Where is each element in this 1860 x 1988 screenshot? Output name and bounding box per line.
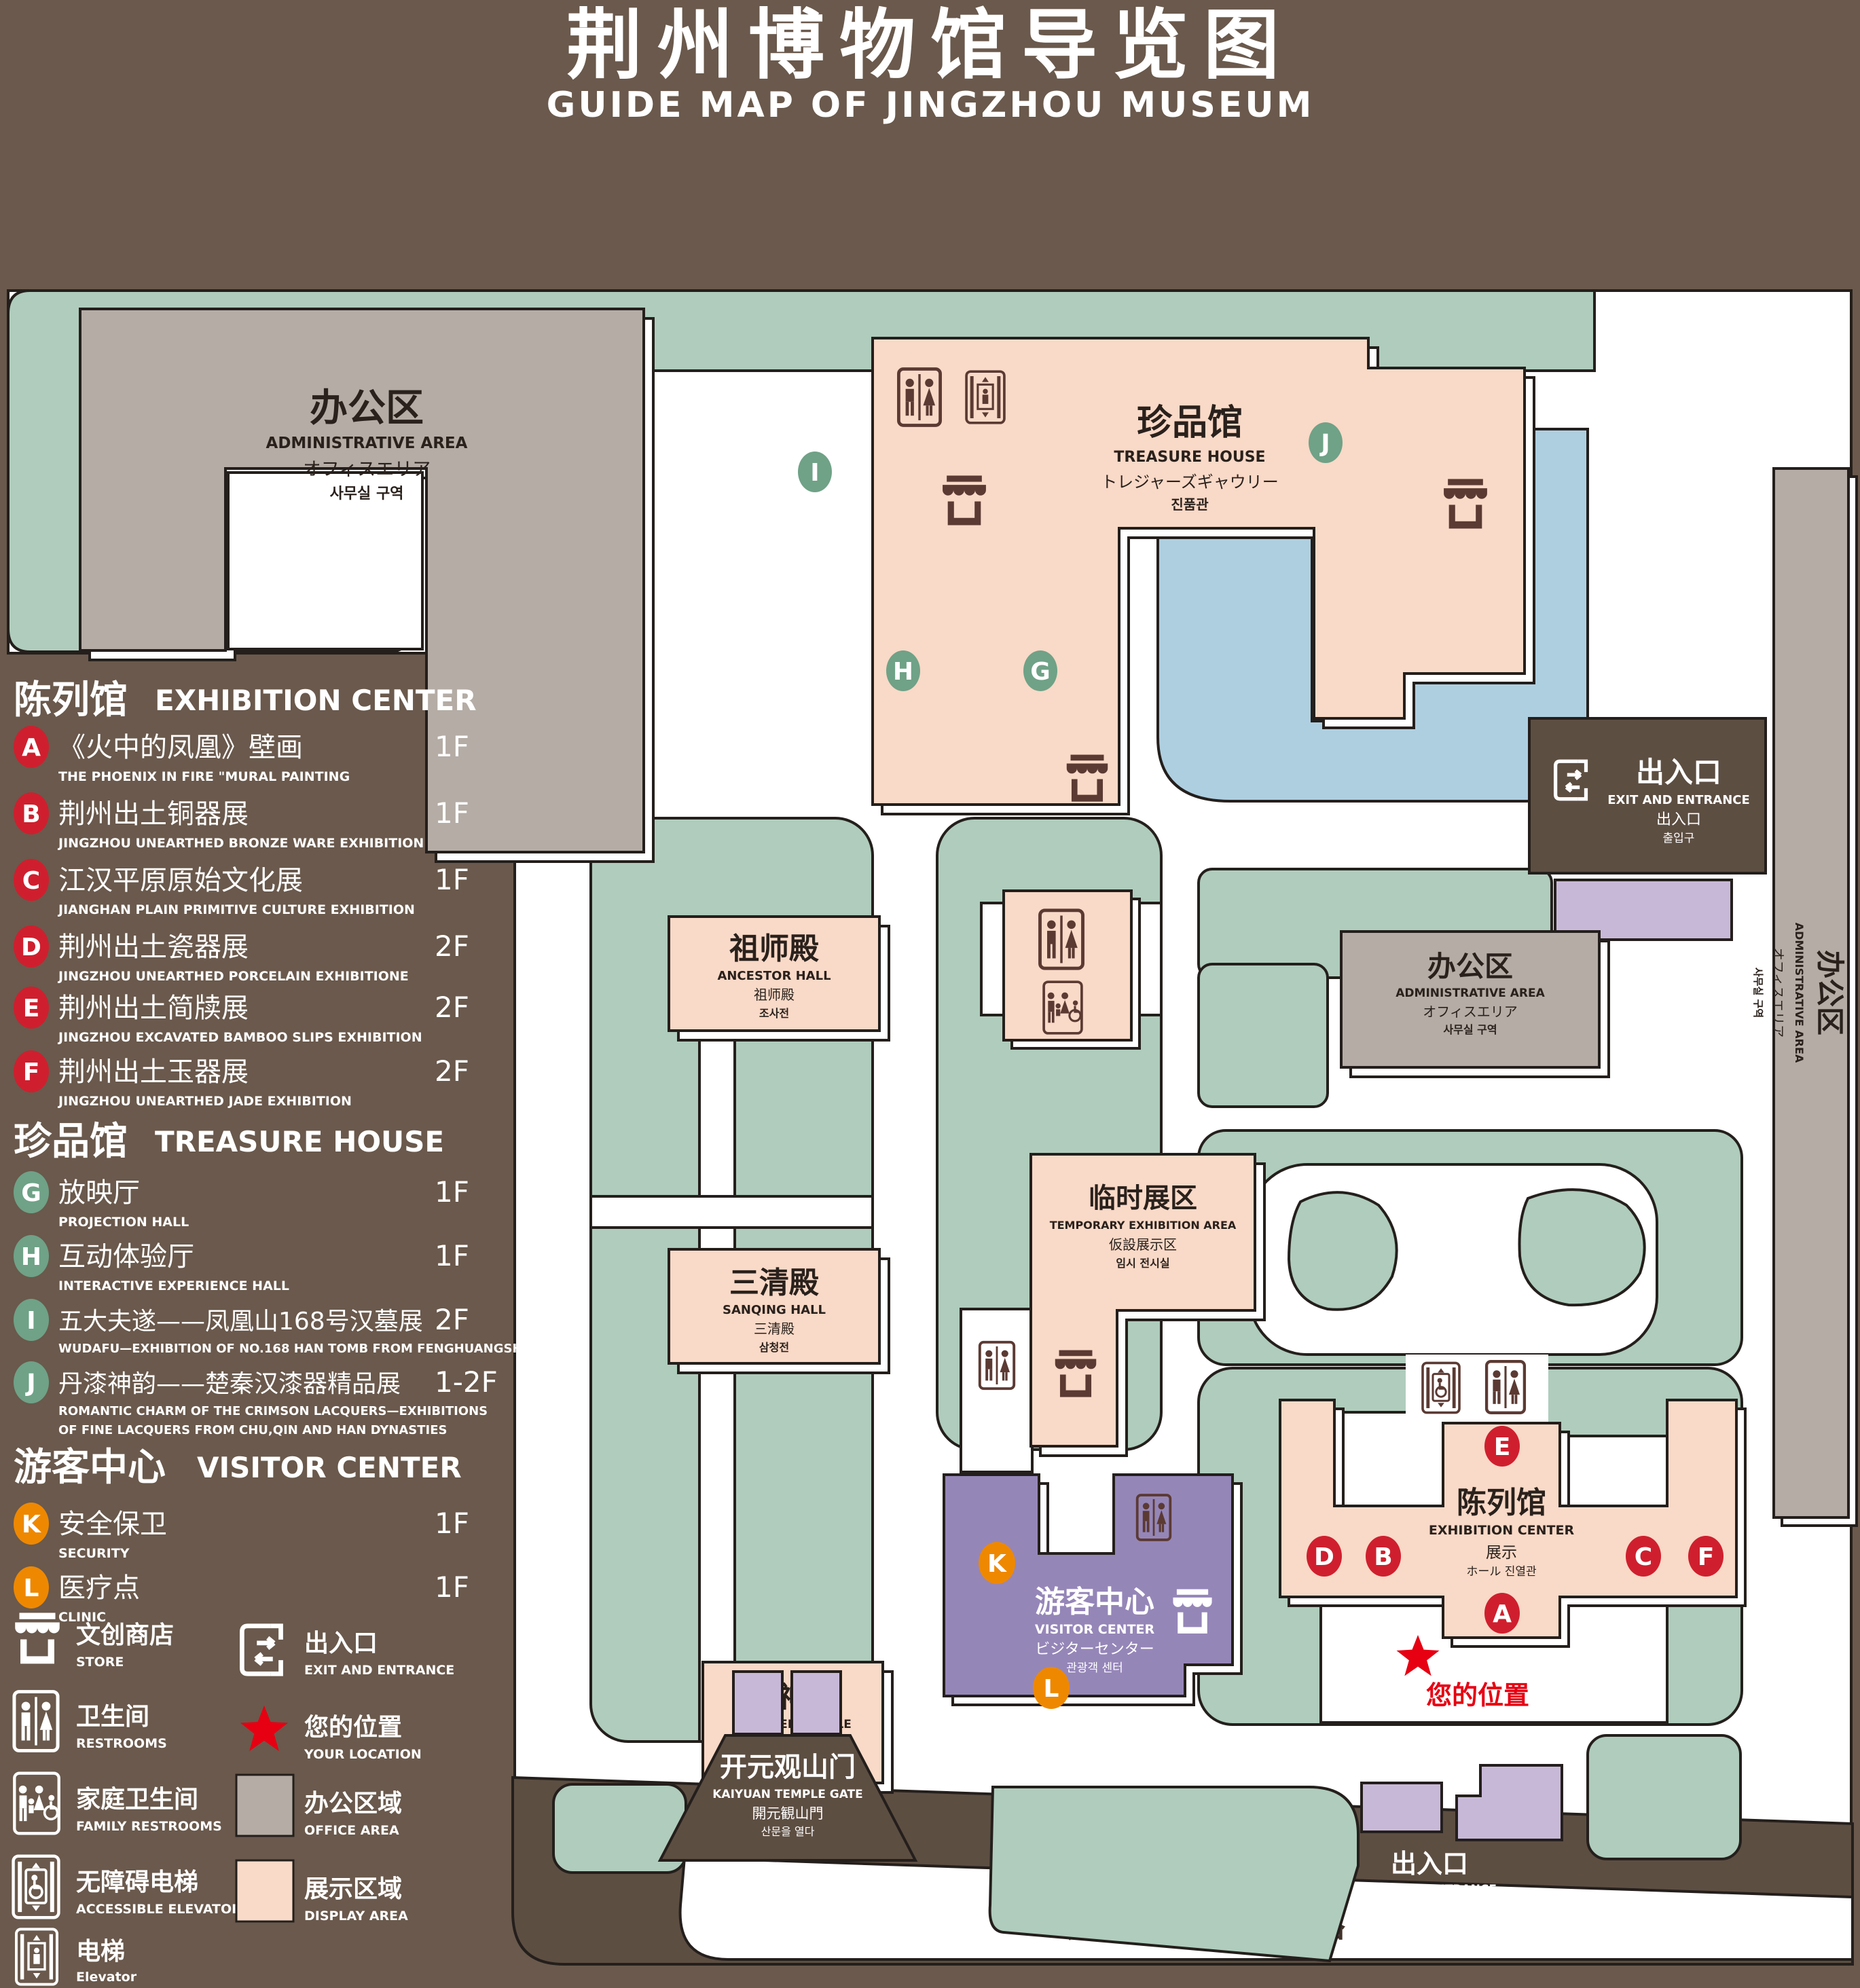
visitor-cn: 游客中心 [1035, 1585, 1154, 1619]
display-area-swatch [236, 1860, 293, 1921]
svg-text:2F: 2F [435, 991, 469, 1024]
svg-text:文创商店: 文创商店 [76, 1621, 174, 1649]
svg-text:YOUR LOCATION: YOUR LOCATION [304, 1747, 422, 1762]
marker-f: F [1688, 1536, 1724, 1577]
gate-cn: 开元观山门 [720, 1752, 856, 1783]
legend-your-location: 您的位置 YOUR LOCATION [240, 1706, 422, 1762]
sidebar-item-i: I 五大夫遂——凤凰山168号汉墓展 WUDAFU—EXHIBITION OF … [14, 1299, 543, 1356]
ancestor-cn: 祖师殿 [729, 932, 819, 966]
treasure-jp: トレジャーズギャウリー [1101, 473, 1279, 492]
gate-pillar-west [733, 1672, 782, 1734]
svg-text:1F: 1F [435, 1175, 469, 1209]
temporary-l4: 임시 전시실 [1116, 1257, 1169, 1270]
legend-accessible-elevator: 无障碍电梯 ACCESSIBLE ELEVATOR [14, 1856, 242, 1918]
elevator-icon [966, 371, 1004, 423]
legend-display-area: 展示区域 DISPLAY AREA [236, 1860, 408, 1923]
section-visitor-cn: 游客中心 [14, 1446, 166, 1490]
svg-text:荆州出土铜器展: 荆州出土铜器展 [58, 798, 249, 830]
svg-text:J: J [24, 1369, 35, 1397]
svg-text:安全保卫: 安全保卫 [58, 1509, 167, 1540]
legend-office-area: 办公区域 OFFICE AREA [236, 1775, 402, 1838]
svg-text:WUDAFU—EXHIBITION OF NO.168 HA: WUDAFU—EXHIBITION OF NO.168 HAN TOMB FRO… [58, 1342, 543, 1356]
visitor-en: VISITOR CENTER [1035, 1622, 1155, 1637]
svg-text:J: J [1319, 430, 1330, 458]
lawn-east-finger [1199, 964, 1328, 1107]
treasure-kr: 진품관 [1171, 496, 1209, 513]
svg-text:Elevator: Elevator [76, 1970, 137, 1985]
svg-text:ROMANTIC CHARM OF THE CRIMSON: ROMANTIC CHARM OF THE CRIMSON LACQUERS—E… [58, 1404, 488, 1418]
admin-e-en: ADMINISTRATIVE AREA [1793, 923, 1806, 1063]
sidebar-item-c: C 江汉平原原始文化展 JIANGHAN PLAIN PRIMITIVE CUL… [14, 859, 469, 917]
gate-pillar-east [792, 1672, 841, 1734]
svg-text:C: C [1635, 1543, 1652, 1571]
svg-text:THE PHOENIX IN FIRE "MURAL PAI: THE PHOENIX IN FIRE "MURAL PAINTING [58, 769, 350, 784]
exit-ne-en: EXIT AND ENTRANCE [1607, 793, 1750, 807]
svg-text:江汉平原原始文化展: 江汉平原原始文化展 [58, 865, 303, 896]
svg-text:1F: 1F [435, 796, 469, 830]
svg-text:医疗点: 医疗点 [58, 1572, 140, 1604]
admin-e-cn: 办公区 [1813, 950, 1846, 1035]
svg-text:OFFICE AREA: OFFICE AREA [304, 1823, 399, 1838]
legend-elevator: 电梯 Elevator [16, 1929, 137, 1985]
svg-text:JIANGHAN PLAIN PRIMITIVE CULTU: JIANGHAN PLAIN PRIMITIVE CULTURE EXHIBIT… [57, 902, 415, 917]
svg-text:EXIT AND ENTRANCE: EXIT AND ENTRANCE [304, 1663, 454, 1678]
svg-text:1F: 1F [435, 1570, 469, 1604]
legend-restroom: 卫生间 RESTROOMS [14, 1692, 167, 1751]
accessible-elevator-icon [14, 1856, 59, 1918]
svg-text:2F: 2F [435, 1303, 469, 1336]
svg-text:荆州出土简牍展: 荆州出土简牍展 [58, 993, 249, 1024]
marker-a: A [1484, 1593, 1520, 1634]
garden-island-east [1520, 1190, 1645, 1305]
visitor-kr: 관광객 센터 [1066, 1661, 1123, 1675]
svg-text:H: H [21, 1243, 41, 1271]
ancestor-l3: 祖师殿 [754, 987, 795, 1003]
path-column-a-horizontal [591, 1196, 873, 1228]
admin-e-jp: オフィスエリア [1770, 948, 1785, 1038]
svg-text:1-2F: 1-2F [435, 1365, 498, 1399]
svg-text:K: K [987, 1550, 1007, 1578]
svg-text:D: D [1314, 1543, 1334, 1571]
map-canvas: 荆州博物馆导览图 GUIDE MAP OF JINGZHOU MUSEUM 荆 … [0, 0, 1860, 1988]
exit-s-cn: 出入口 [1391, 1849, 1468, 1879]
svg-text:INTERACTIVE EXPERIENCE HALL: INTERACTIVE EXPERIENCE HALL [58, 1278, 289, 1293]
exit-ne-kr: 출입구 [1663, 832, 1695, 845]
temporary-l3: 仮設展示区 [1109, 1236, 1177, 1253]
sidebar-item-a: A 《火中的凤凰》壁画 THE PHOENIX IN FIRE "MURAL P… [14, 726, 469, 784]
svg-text:1F: 1F [435, 1507, 469, 1540]
your-location-label: 您的位置 [1426, 1680, 1529, 1710]
gate-en: KAIYUAN TEMPLE GATE [712, 1788, 863, 1801]
gate-jp: 開元観山門 [752, 1805, 824, 1822]
gate-kr: 산문을 열다 [761, 1825, 815, 1838]
legend-store: 文创商店 STORE [15, 1613, 174, 1670]
exhibition-l4: ホール 진열관 [1466, 1565, 1536, 1579]
lawn-south-east [1588, 1735, 1740, 1859]
admin-c-jp: オフィスエリア [1423, 1004, 1518, 1020]
svg-text:B: B [1374, 1543, 1392, 1571]
svg-text:I: I [810, 459, 819, 487]
marker-g: G [1023, 650, 1057, 691]
svg-text:家庭卫生间: 家庭卫生间 [76, 1786, 198, 1814]
restroom-icon [14, 1692, 58, 1751]
exit-s-en: EXIT AND ENTRANCE [1362, 1883, 1497, 1896]
sidebar-item-h: H 互动体验厅 INTERACTIVE EXPERIENCE HALL 1F [14, 1235, 469, 1293]
page-title: 荆州博物馆导览图 [566, 1, 1294, 90]
marker-c: C [1626, 1536, 1661, 1577]
legend-family-restroom: 家庭卫生间 FAMILY RESTROOMS [14, 1773, 222, 1834]
svg-text:FAMILY RESTROOMS: FAMILY RESTROOMS [76, 1819, 222, 1834]
svg-text:电梯: 电梯 [76, 1938, 125, 1966]
temporary-en: TEMPORARY EXHIBITION AREA [1050, 1219, 1237, 1232]
svg-text:E: E [1494, 1433, 1511, 1461]
admin-c-kr: 사무실 구역 [1443, 1023, 1497, 1036]
svg-text:A: A [22, 734, 41, 762]
svg-text:展示区域: 展示区域 [304, 1875, 402, 1903]
sidebar-item-k: K 安全保卫 SECURITY 1F [14, 1503, 469, 1561]
store-icon [15, 1613, 60, 1663]
svg-text:五大夫遂——凤凰山168号汉墓展: 五大夫遂——凤凰山168号汉墓展 [58, 1308, 423, 1336]
building-restroom-pavilion [981, 891, 1161, 1048]
svg-text:F: F [1698, 1543, 1715, 1571]
svg-text:STORE: STORE [76, 1655, 124, 1670]
svg-text:您的位置: 您的位置 [304, 1714, 402, 1742]
svg-text:JINGZHOU EXCAVATED BAMBOO SLIP: JINGZHOU EXCAVATED BAMBOO SLIPS EXHIBITI… [57, 1030, 422, 1045]
page-subtitle: GUIDE MAP OF JINGZHOU MUSEUM [547, 85, 1315, 126]
svg-text:F: F [23, 1059, 40, 1086]
exhibition-cn: 陈列馆 [1457, 1486, 1546, 1520]
exit-northeast: 出入口 EXIT AND ENTRANCE 出入口 출입구 [1529, 718, 1766, 940]
visitor-jp: ビジターセンター [1035, 1641, 1154, 1658]
svg-text:DISPLAY AREA: DISPLAY AREA [304, 1909, 408, 1923]
sanqing-cn: 三清殿 [729, 1266, 819, 1300]
marker-e: E [1484, 1426, 1520, 1467]
sanqing-en: SANQING HALL [723, 1303, 826, 1317]
svg-text:OF FINE LACQUERS FROM CHU,QIN: OF FINE LACQUERS FROM CHU,QIN AND HAN DY… [58, 1423, 447, 1437]
admin-nw-cn: 办公区 [310, 386, 424, 430]
marker-h: H [886, 650, 920, 691]
section-exhibition-cn: 陈列馆 [14, 678, 128, 722]
svg-text:荆州出土瓷器展: 荆州出土瓷器展 [58, 932, 249, 963]
admin-e-kr: 사무실 구역 [1752, 968, 1764, 1018]
section-visitor-en: VISITOR CENTER [197, 1451, 462, 1484]
guide-map-page: 荆州博物馆导览图 GUIDE MAP OF JINGZHOU MUSEUM 荆 … [0, 0, 1860, 1988]
svg-text:放映厅: 放映厅 [58, 1177, 140, 1209]
sidebar-item-g: G 放映厅 PROJECTION HALL 1F [14, 1171, 469, 1230]
building-ancestor-hall: 祖师殿 ANCESTOR HALL 祖师殿 조사전 [669, 917, 889, 1040]
svg-text:办公区域: 办公区域 [304, 1790, 402, 1818]
svg-text:出入口: 出入口 [304, 1630, 378, 1657]
sanqing-l3: 三清殿 [754, 1321, 795, 1337]
exhibition-l3: 展示 [1486, 1544, 1517, 1562]
sidebar-item-f: F 荆州出土玉器展 JINGZHOU UNEARTHED JADE EXHIBI… [14, 1050, 469, 1109]
building-admin-center: 办公区 ADMINISTRATIVE AREA オフィスエリア 사무실 구역 [1341, 932, 1609, 1077]
marker-k: K [979, 1542, 1015, 1584]
section-treasure-cn: 珍品馆 [14, 1120, 128, 1164]
svg-text:L: L [1044, 1675, 1059, 1703]
exit-ne-cn: 出入口 [1636, 756, 1721, 789]
admin-c-en: ADMINISTRATIVE AREA [1396, 987, 1545, 1000]
admin-c-cn: 办公区 [1427, 950, 1513, 983]
svg-text:PROJECTION HALL: PROJECTION HALL [58, 1215, 189, 1230]
treasure-en: TREASURE HOUSE [1114, 449, 1265, 466]
garden-island-west [1289, 1192, 1397, 1310]
svg-text:荆州出土玉器展: 荆州出土玉器展 [58, 1056, 249, 1088]
treasure-cn: 珍品馆 [1137, 403, 1243, 443]
admin-nw-jp: オフィスエリア [303, 459, 431, 480]
svg-text:D: D [21, 934, 41, 961]
svg-text:G: G [21, 1179, 41, 1207]
exit-ne-jp: 出入口 [1656, 811, 1701, 828]
svg-text:ACCESSIBLE ELEVATOR: ACCESSIBLE ELEVATOR [76, 1902, 242, 1917]
svg-text:G: G [1030, 658, 1051, 686]
gate-building-s1 [1362, 1783, 1442, 1832]
svg-text:丹漆神韵——楚秦汉漆器精品展: 丹漆神韵——楚秦汉漆器精品展 [58, 1370, 401, 1398]
svg-text:K: K [22, 1511, 41, 1539]
svg-text:卫生间: 卫生间 [76, 1703, 149, 1731]
svg-text:I: I [26, 1307, 35, 1335]
svg-text:E: E [23, 995, 40, 1023]
marker-j: J [1309, 422, 1343, 463]
svg-text:L: L [24, 1575, 39, 1602]
svg-text:1F: 1F [435, 1239, 469, 1272]
legend-exit: 出入口 EXIT AND ENTRANCE [242, 1626, 454, 1678]
sidebar-item-j: J 丹漆神韵——楚秦汉漆器精品展 ROMANTIC CHARM OF THE C… [14, 1361, 498, 1437]
section-exhibition-en: EXHIBITION CENTER [155, 684, 477, 717]
lawn-south-middle [990, 1787, 1358, 1961]
svg-text:B: B [22, 800, 40, 828]
marker-d: D [1307, 1536, 1342, 1577]
section-treasure-en: TREASURE HOUSE [155, 1125, 444, 1158]
marker-i: I [798, 452, 832, 492]
svg-text:2F: 2F [435, 1054, 469, 1088]
svg-text:无障碍电梯: 无障碍电梯 [76, 1869, 198, 1896]
ancestor-en: ANCESTOR HALL [717, 969, 831, 983]
svg-text:SECURITY: SECURITY [58, 1546, 130, 1561]
svg-text:《火中的凤凰》壁画: 《火中的凤凰》壁画 [58, 732, 303, 763]
temporary-cn: 临时展区 [1089, 1183, 1197, 1214]
svg-text:C: C [22, 867, 40, 895]
marker-l: L [1033, 1667, 1070, 1709]
sidebar-item-d: D 荆州出土瓷器展 JINGZHOU UNEARTHED PORCELAIN E… [14, 925, 469, 984]
exhibition-en: EXHIBITION CENTER [1429, 1523, 1575, 1538]
svg-text:1F: 1F [435, 863, 469, 896]
svg-text:H: H [893, 658, 913, 686]
ancestor-l4: 조사전 [759, 1007, 789, 1020]
sidebar-item-l: L 医疗点 CLINIC 1F [14, 1566, 469, 1625]
building-sanqing-hall: 三清殿 SANQING HALL 三清殿 삼청전 [669, 1249, 889, 1373]
svg-text:互动体验厅: 互动体验厅 [58, 1241, 194, 1272]
path-column-a-vertical [699, 1013, 735, 1742]
sanqing-l4: 삼청전 [759, 1341, 789, 1354]
svg-text:JINGZHOU UNEARTHED JADE EXHIBI: JINGZHOU UNEARTHED JADE EXHIBITION [57, 1094, 352, 1109]
elevator-icon [16, 1929, 57, 1984]
office-area-swatch [236, 1775, 293, 1836]
marker-b: B [1366, 1536, 1401, 1577]
accessible-elevator-icon [1423, 1363, 1459, 1412]
svg-text:JINGZHOU UNEARTHED BRONZE WARE: JINGZHOU UNEARTHED BRONZE WARE EXHIBITIO… [57, 836, 424, 851]
svg-text:2F: 2F [435, 929, 469, 963]
svg-text:JINGZHOU UNEARTHED PORCELAIN E: JINGZHOU UNEARTHED PORCELAIN EXHIBITIONE [57, 969, 409, 984]
svg-text:A: A [1493, 1600, 1512, 1628]
exit-icon [242, 1626, 280, 1674]
your-location-star-icon [240, 1706, 288, 1751]
sidebar: 陈列馆 EXHIBITION CENTER A 《火中的凤凰》壁画 THE PH… [14, 678, 543, 1985]
sidebar-item-b: B 荆州出土铜器展 JINGZHOU UNEARTHED BRONZE WARE… [14, 792, 469, 851]
admin-nw-en: ADMINISTRATIVE AREA [266, 435, 468, 452]
svg-text:1F: 1F [435, 730, 469, 763]
admin-nw-kr: 사무실 구역 [330, 485, 404, 502]
svg-text:RESTROOMS: RESTROOMS [76, 1736, 167, 1751]
family-restroom-icon [14, 1773, 58, 1834]
sidebar-item-e: E 荆州出土简牍展 JINGZHOU EXCAVATED BAMBOO SLIP… [14, 987, 469, 1045]
